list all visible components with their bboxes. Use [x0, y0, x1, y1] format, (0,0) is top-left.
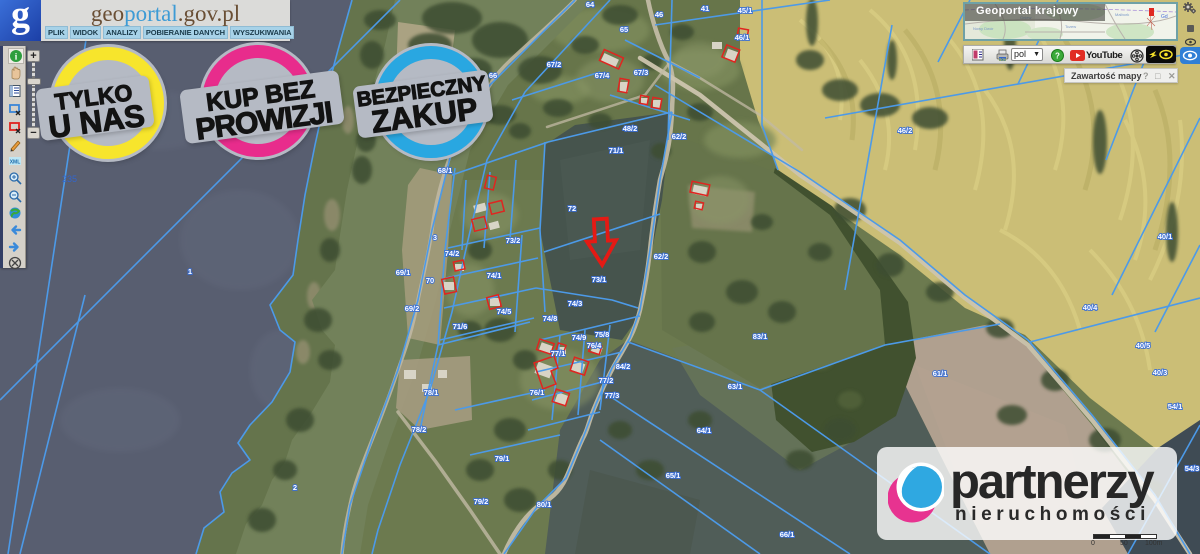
- svg-text:77/3: 77/3: [605, 391, 620, 400]
- svg-text:67/4: 67/4: [595, 71, 610, 80]
- svg-text:62/2: 62/2: [672, 132, 687, 141]
- svg-text:71/6: 71/6: [453, 322, 468, 331]
- svg-text:75/8: 75/8: [595, 330, 610, 339]
- svg-text:XML: XML: [10, 160, 21, 166]
- svg-text:74/9: 74/9: [572, 333, 587, 342]
- svg-text:66/1: 66/1: [780, 530, 795, 539]
- svg-text:73/1: 73/1: [592, 275, 607, 284]
- svg-text:Malbork: Malbork: [1115, 12, 1129, 17]
- svg-text:46: 46: [655, 10, 663, 19]
- svg-text:74/5: 74/5: [497, 307, 512, 316]
- svg-text:78/1: 78/1: [424, 388, 439, 397]
- svg-text:40/4: 40/4: [1083, 303, 1098, 312]
- svg-text:54/3: 54/3: [1185, 464, 1200, 473]
- svg-text:?: ?: [1055, 52, 1060, 61]
- svg-text:83/1: 83/1: [753, 332, 768, 341]
- svg-text:2: 2: [293, 483, 297, 492]
- svg-text:62/2: 62/2: [654, 252, 669, 261]
- svg-text:40/5: 40/5: [1136, 341, 1151, 350]
- svg-text:48/2: 48/2: [623, 124, 638, 133]
- svg-text:46/1: 46/1: [735, 33, 750, 42]
- svg-text:70: 70: [426, 276, 434, 285]
- svg-text:61/1: 61/1: [933, 369, 948, 378]
- svg-text:Nowy Dwór: Nowy Dwór: [973, 26, 994, 31]
- svg-text:79/1: 79/1: [495, 454, 510, 463]
- svg-text:78/2: 78/2: [412, 425, 427, 434]
- svg-text:GOV: GOV: [999, 58, 1007, 62]
- svg-text:Tczew: Tczew: [1065, 24, 1076, 29]
- svg-text:64: 64: [586, 0, 595, 9]
- svg-text:80/1: 80/1: [537, 500, 552, 509]
- svg-text:68/1: 68/1: [438, 166, 453, 175]
- svg-text:63/1: 63/1: [728, 382, 743, 391]
- svg-text:40/3: 40/3: [1153, 368, 1168, 377]
- svg-text:Gd: Gd: [1161, 14, 1168, 20]
- svg-text:46/2: 46/2: [898, 126, 913, 135]
- svg-text:69/1: 69/1: [396, 268, 411, 277]
- svg-text:73/2: 73/2: [506, 236, 521, 245]
- svg-text:77/1: 77/1: [551, 349, 566, 358]
- svg-text:77/2: 77/2: [599, 376, 614, 385]
- svg-text:69/2: 69/2: [405, 304, 420, 313]
- svg-text:74/2: 74/2: [445, 249, 460, 258]
- svg-text:67/2: 67/2: [547, 60, 562, 69]
- svg-text:235: 235: [62, 174, 77, 184]
- svg-text:74/1: 74/1: [487, 271, 502, 280]
- svg-text:54/1: 54/1: [1168, 402, 1183, 411]
- svg-text:76/4: 76/4: [587, 341, 602, 350]
- svg-text:40/1: 40/1: [1158, 232, 1173, 241]
- svg-text:72: 72: [568, 204, 576, 213]
- svg-text:65: 65: [620, 25, 628, 34]
- svg-text:3: 3: [433, 233, 437, 242]
- svg-text:71/1: 71/1: [609, 146, 624, 155]
- svg-text:64/1: 64/1: [697, 426, 712, 435]
- svg-text:79/2: 79/2: [474, 497, 489, 506]
- svg-text:76/1: 76/1: [530, 388, 545, 397]
- svg-text:41: 41: [701, 4, 709, 13]
- svg-text:1: 1: [188, 267, 192, 276]
- svg-text:74/8: 74/8: [543, 314, 558, 323]
- svg-text:66: 66: [489, 71, 497, 80]
- svg-text:74/3: 74/3: [568, 299, 583, 308]
- svg-text:65/1: 65/1: [666, 471, 681, 480]
- svg-text:84/2: 84/2: [616, 362, 631, 371]
- svg-text:45/1: 45/1: [738, 6, 753, 15]
- svg-text:67/3: 67/3: [634, 68, 649, 77]
